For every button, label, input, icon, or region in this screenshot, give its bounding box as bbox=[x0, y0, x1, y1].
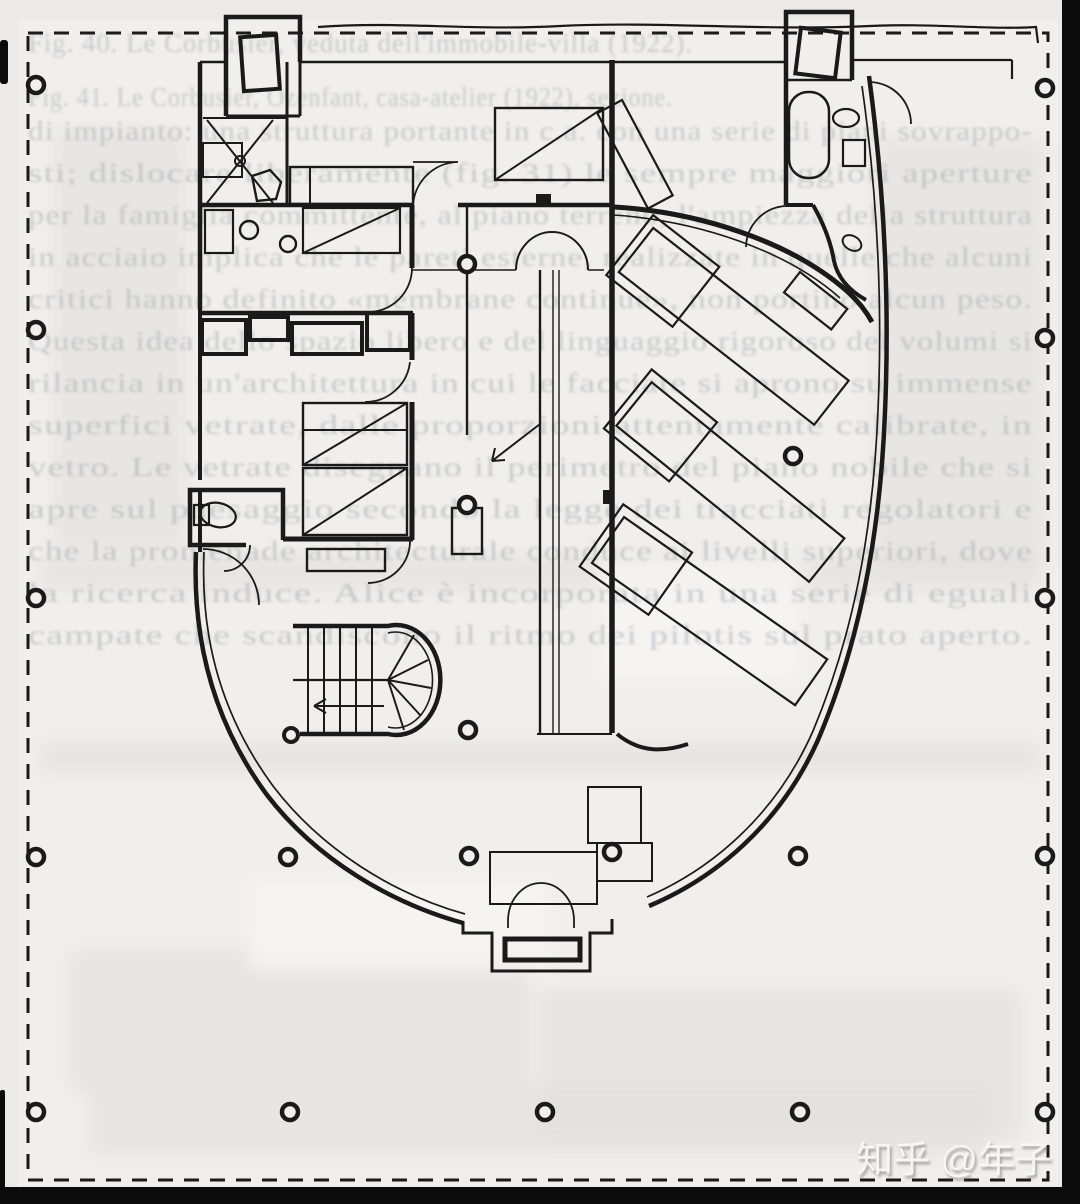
ghost-body-line: critici hanno definito «membrane continu… bbox=[28, 284, 1033, 314]
pilotis-column bbox=[1037, 1104, 1053, 1120]
door-stop bbox=[536, 194, 551, 205]
pilotis-column-interior bbox=[461, 848, 477, 864]
scan-edge-bottom bbox=[0, 1187, 1080, 1204]
pilotis-column-interior bbox=[459, 497, 475, 513]
pilotis-column bbox=[792, 1104, 808, 1120]
texture-band bbox=[40, 742, 1040, 772]
floor-plan-figure: Fig. 40. Le Corbusier, veduta dell'immob… bbox=[0, 0, 1080, 1204]
pilotis-column bbox=[282, 1104, 298, 1120]
scan-blemish-left-top bbox=[0, 40, 8, 84]
pilotis-column-interior bbox=[460, 722, 476, 738]
pilotis-column bbox=[1037, 330, 1053, 346]
pilotis-column-interior bbox=[280, 849, 296, 865]
pilotis-column-interior bbox=[604, 844, 620, 860]
ghost-caption-1: Fig. 40. Le Corbusier, veduta dell'immob… bbox=[28, 28, 693, 58]
pilotis-column bbox=[28, 77, 44, 93]
pilotis-column bbox=[28, 322, 44, 338]
ghost-body-line: campate che scandiscono il ritmo dei pil… bbox=[28, 620, 1033, 650]
ghost-body-line: rilancia in un'architettura in cui le fa… bbox=[28, 368, 1033, 398]
ghost-body-line: di impianto: una struttura portante in c… bbox=[28, 116, 1033, 146]
watermark-text: 知乎 @年子 bbox=[856, 1139, 1052, 1180]
pilotis-column bbox=[28, 590, 44, 606]
pilotis-column-interior bbox=[785, 448, 801, 464]
watermark: 知乎 @年子 知乎 @年子 bbox=[856, 1139, 1054, 1183]
pilotis-column-interior bbox=[790, 848, 806, 864]
pilotis-column bbox=[1037, 848, 1053, 864]
ghost-body-line: apre sul paesaggio secondo la legge dei … bbox=[28, 494, 1033, 524]
wall-nib bbox=[603, 490, 613, 504]
ghost-body-line: che la promenade architecturale conduce … bbox=[28, 536, 1033, 566]
stair-newel-knob bbox=[284, 728, 298, 742]
ghost-text: Fig. 40. Le Corbusier, veduta dell'immob… bbox=[28, 28, 1033, 650]
texture-patch bbox=[70, 950, 530, 1090]
ghost-body-line: in acciaio implica che le pareti esterne… bbox=[28, 242, 1033, 272]
pilotis-column bbox=[537, 1104, 553, 1120]
scanned-book-page: Fig. 40. Le Corbusier, veduta dell'immob… bbox=[0, 0, 1080, 1204]
ghost-body-line: Questa idea dello spazio libero e del li… bbox=[28, 326, 1033, 356]
pilotis-column bbox=[1037, 590, 1053, 606]
ghost-body-line: la ricerca induce. Alice è incorporata i… bbox=[28, 578, 1033, 608]
pilotis-column bbox=[28, 849, 44, 865]
scan-blemish-left-bottom bbox=[0, 1090, 5, 1190]
pilotis-column-interior bbox=[459, 256, 475, 272]
pilotis-column bbox=[28, 1104, 44, 1120]
scan-edge-right bbox=[1062, 0, 1080, 1204]
pilotis-column bbox=[1037, 80, 1053, 96]
